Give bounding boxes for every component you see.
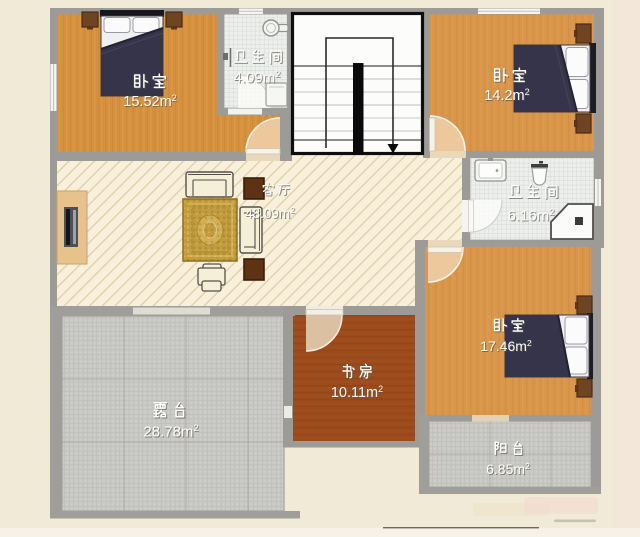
svg-text:15.52m2: 15.52m2 (123, 93, 176, 110)
svg-text:6.16m2: 6.16m2 (508, 207, 555, 224)
svg-text:17.46m2: 17.46m2 (480, 338, 532, 354)
svg-text:10.11m2: 10.11m2 (331, 384, 383, 401)
svg-text:4.09m2: 4.09m2 (234, 69, 281, 86)
svg-text:28.78m2: 28.78m2 (143, 423, 198, 440)
svg-text:48.09m2: 48.09m2 (245, 205, 295, 221)
svg-text:14.2m2: 14.2m2 (484, 87, 529, 104)
svg-text:6.85m2: 6.85m2 (486, 461, 530, 477)
